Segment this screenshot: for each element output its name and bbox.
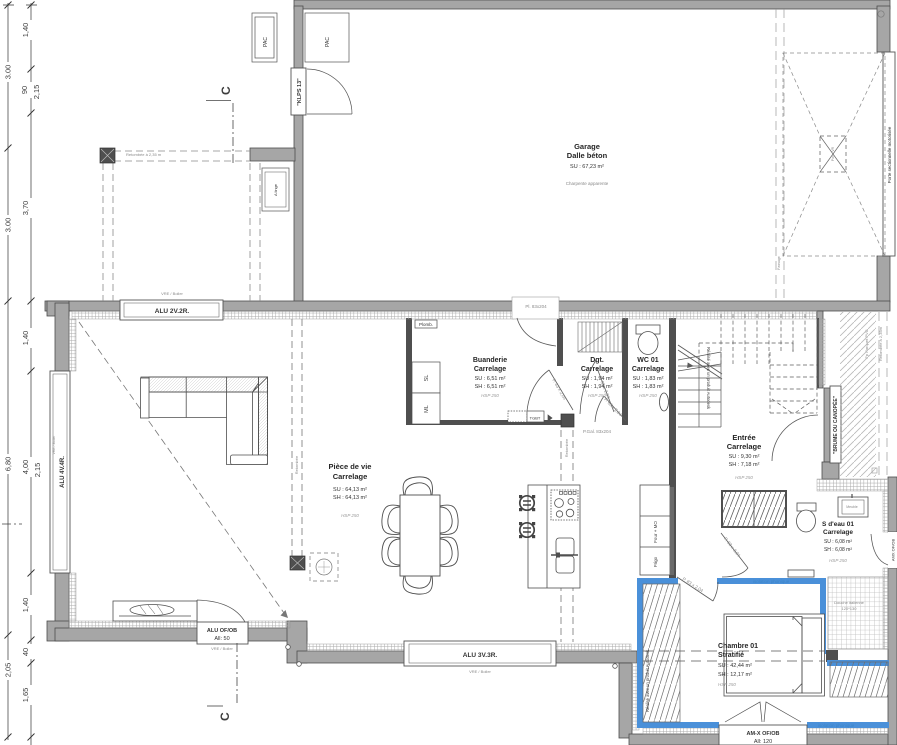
- svg-text:SU : 9,30 m²: SU : 9,30 m²: [729, 454, 760, 460]
- svg-text:SH : 1,83 m²: SH : 1,83 m²: [633, 384, 664, 390]
- svg-text:1,40: 1,40: [21, 331, 30, 346]
- svg-text:Garage: Garage: [574, 142, 600, 151]
- svg-text:SU : 42,44 m²: SU : 42,44 m²: [718, 663, 752, 669]
- svg-text:SU : 1,83 m²: SU : 1,83 m²: [633, 376, 664, 382]
- svg-text:1,65: 1,65: [21, 688, 30, 703]
- svg-text:Porte sectionnelle motorisée: Porte sectionnelle motorisée: [887, 126, 892, 183]
- svg-text:Carrelage: Carrelage: [727, 442, 762, 451]
- svg-text:AMX OF/OB: AMX OF/OB: [891, 539, 896, 562]
- svg-text:WC 01: WC 01: [637, 357, 659, 364]
- svg-text:90: 90: [20, 86, 29, 94]
- svg-text:4,00: 4,00: [21, 460, 30, 475]
- svg-text:2,15: 2,15: [33, 463, 42, 478]
- svg-text:Carrelage: Carrelage: [581, 366, 613, 373]
- svg-text:Frigo: Frigo: [653, 556, 658, 567]
- svg-text:HSP 250: HSP 250: [588, 393, 606, 398]
- svg-text:C: C: [219, 86, 233, 95]
- svg-text:SU : 64,13 m²: SU : 64,13 m²: [333, 487, 367, 493]
- svg-text:Dgt.: Dgt.: [590, 357, 604, 364]
- svg-text:3,70: 3,70: [21, 201, 30, 216]
- svg-text:Réalisé avec un produit Autode: Réalisé avec un produit Autodesk: [706, 347, 711, 410]
- svg-text:ALU 4V.4R.: ALU 4V.4R.: [60, 456, 66, 488]
- svg-text:SU : 6,08 m²: SU : 6,08 m²: [824, 539, 852, 545]
- svg-text:Retombée à 2,35 m: Retombée à 2,35 m: [126, 152, 162, 157]
- svg-text:HSP 250: HSP 250: [829, 558, 847, 563]
- svg-text:ALU OF/OB: ALU OF/OB: [207, 628, 237, 634]
- svg-text:3.00: 3.00: [4, 218, 13, 233]
- svg-text:SH : 6,08 m²: SH : 6,08 m²: [824, 547, 852, 553]
- svg-text:Chambre 01: Chambre 01: [718, 643, 758, 650]
- svg-text:"KLPS 13": "KLPS 13": [297, 78, 303, 106]
- svg-text:Réalisé avec un produit Autode: Réalisé avec un produit Autodesk: [645, 649, 650, 712]
- svg-text:P.Gal. 83x204: P.Gal. 83x204: [583, 429, 611, 434]
- svg-text:2,05: 2,05: [4, 663, 13, 678]
- svg-text:All: 120: All: 120: [754, 739, 772, 745]
- svg-text:VRE / Boiler: VRE / Boiler: [161, 291, 183, 296]
- svg-text:HSP 250: HSP 250: [341, 513, 359, 518]
- svg-text:Retombée à 2,35m: Retombée à 2,35m: [878, 326, 883, 361]
- svg-text:Retombée: Retombée: [294, 455, 299, 474]
- svg-text:VRE / Boiler: VRE / Boiler: [211, 646, 233, 651]
- svg-text:TGBT: TGBT: [530, 416, 541, 421]
- svg-text:"BRUME OU CANOPÉE": "BRUME OU CANOPÉE": [831, 395, 839, 454]
- svg-text:Carrelage: Carrelage: [474, 366, 506, 373]
- svg-text:Pl. 83x204: Pl. 83x204: [525, 304, 547, 309]
- svg-text:PAC: PAC: [325, 37, 331, 47]
- svg-text:Porte VR: Porte VR: [831, 146, 835, 161]
- svg-text:Passage: Passage: [777, 256, 781, 270]
- svg-text:SU : 6,51 m²: SU : 6,51 m²: [475, 376, 506, 382]
- svg-text:3.00: 3.00: [4, 65, 13, 80]
- svg-text:HSP 250: HSP 250: [639, 393, 657, 398]
- svg-text:HSP 250: HSP 250: [735, 475, 753, 480]
- svg-text:ALU 2V.2R.: ALU 2V.2R.: [155, 308, 190, 315]
- svg-text:40: 40: [21, 648, 30, 656]
- svg-text:Meuble: Meuble: [846, 505, 858, 509]
- svg-text:Plomb.: Plomb.: [419, 322, 433, 327]
- svg-text:S d'eau 01: S d'eau 01: [822, 521, 854, 528]
- svg-text:AM-X OF/OB: AM-X OF/OB: [747, 731, 780, 737]
- svg-text:Four + MO: Four + MO: [653, 521, 658, 543]
- svg-text:120*130: 120*130: [842, 606, 858, 611]
- svg-text:isolation phonique: isolation phonique: [818, 723, 855, 728]
- svg-text:Stratifié: Stratifié: [718, 652, 744, 659]
- svg-text:HSP 250: HSP 250: [481, 393, 499, 398]
- svg-text:isolation phonique: isolation phonique: [753, 579, 790, 584]
- svg-text:All: 50: All: 50: [214, 636, 229, 642]
- svg-text:C: C: [218, 712, 232, 721]
- svg-text:SU : 67,23 m²: SU : 67,23 m²: [570, 164, 604, 170]
- svg-text:Carrelage: Carrelage: [632, 366, 664, 373]
- svg-text:SL: SL: [424, 375, 430, 382]
- svg-text:ML: ML: [424, 405, 430, 413]
- svg-text:1,40: 1,40: [21, 23, 30, 38]
- svg-text:6,80: 6,80: [4, 457, 13, 472]
- svg-text:VRE / Boiler: VRE / Boiler: [52, 435, 56, 455]
- svg-text:Entrée: Entrée: [732, 433, 755, 442]
- svg-text:SU : 1,94 m²: SU : 1,94 m²: [582, 376, 613, 382]
- svg-text:Charpente apparente: Charpente apparente: [566, 181, 609, 186]
- svg-text:SH : 64,13 m²: SH : 64,13 m²: [333, 495, 367, 501]
- svg-text:1,40: 1,40: [21, 598, 30, 613]
- svg-text:Douche italienne: Douche italienne: [834, 600, 865, 605]
- svg-text:HSP 250: HSP 250: [718, 682, 736, 687]
- svg-text:SH : 6,51 m²: SH : 6,51 m²: [475, 384, 506, 390]
- svg-text:Dalle béton: Dalle béton: [567, 151, 608, 160]
- svg-text:Buanderie: Buanderie: [473, 357, 507, 364]
- svg-text:ALU 3V.3R.: ALU 3V.3R.: [463, 652, 498, 659]
- svg-text:VRE / Boiler: VRE / Boiler: [469, 669, 491, 674]
- svg-text:Pièce de vie: Pièce de vie: [329, 462, 372, 471]
- svg-text:SH : 12,17 m²: SH : 12,17 m²: [718, 672, 752, 678]
- svg-text:A linge: A linge: [273, 183, 278, 196]
- svg-text:PAC: PAC: [263, 37, 269, 47]
- svg-text:SH : 7,18 m²: SH : 7,18 m²: [729, 462, 760, 468]
- svg-text:Carrelage: Carrelage: [333, 472, 368, 481]
- svg-text:Carrelage: Carrelage: [823, 529, 853, 536]
- svg-text:2,15: 2,15: [32, 85, 41, 100]
- svg-text:Retombée: Retombée: [564, 438, 569, 457]
